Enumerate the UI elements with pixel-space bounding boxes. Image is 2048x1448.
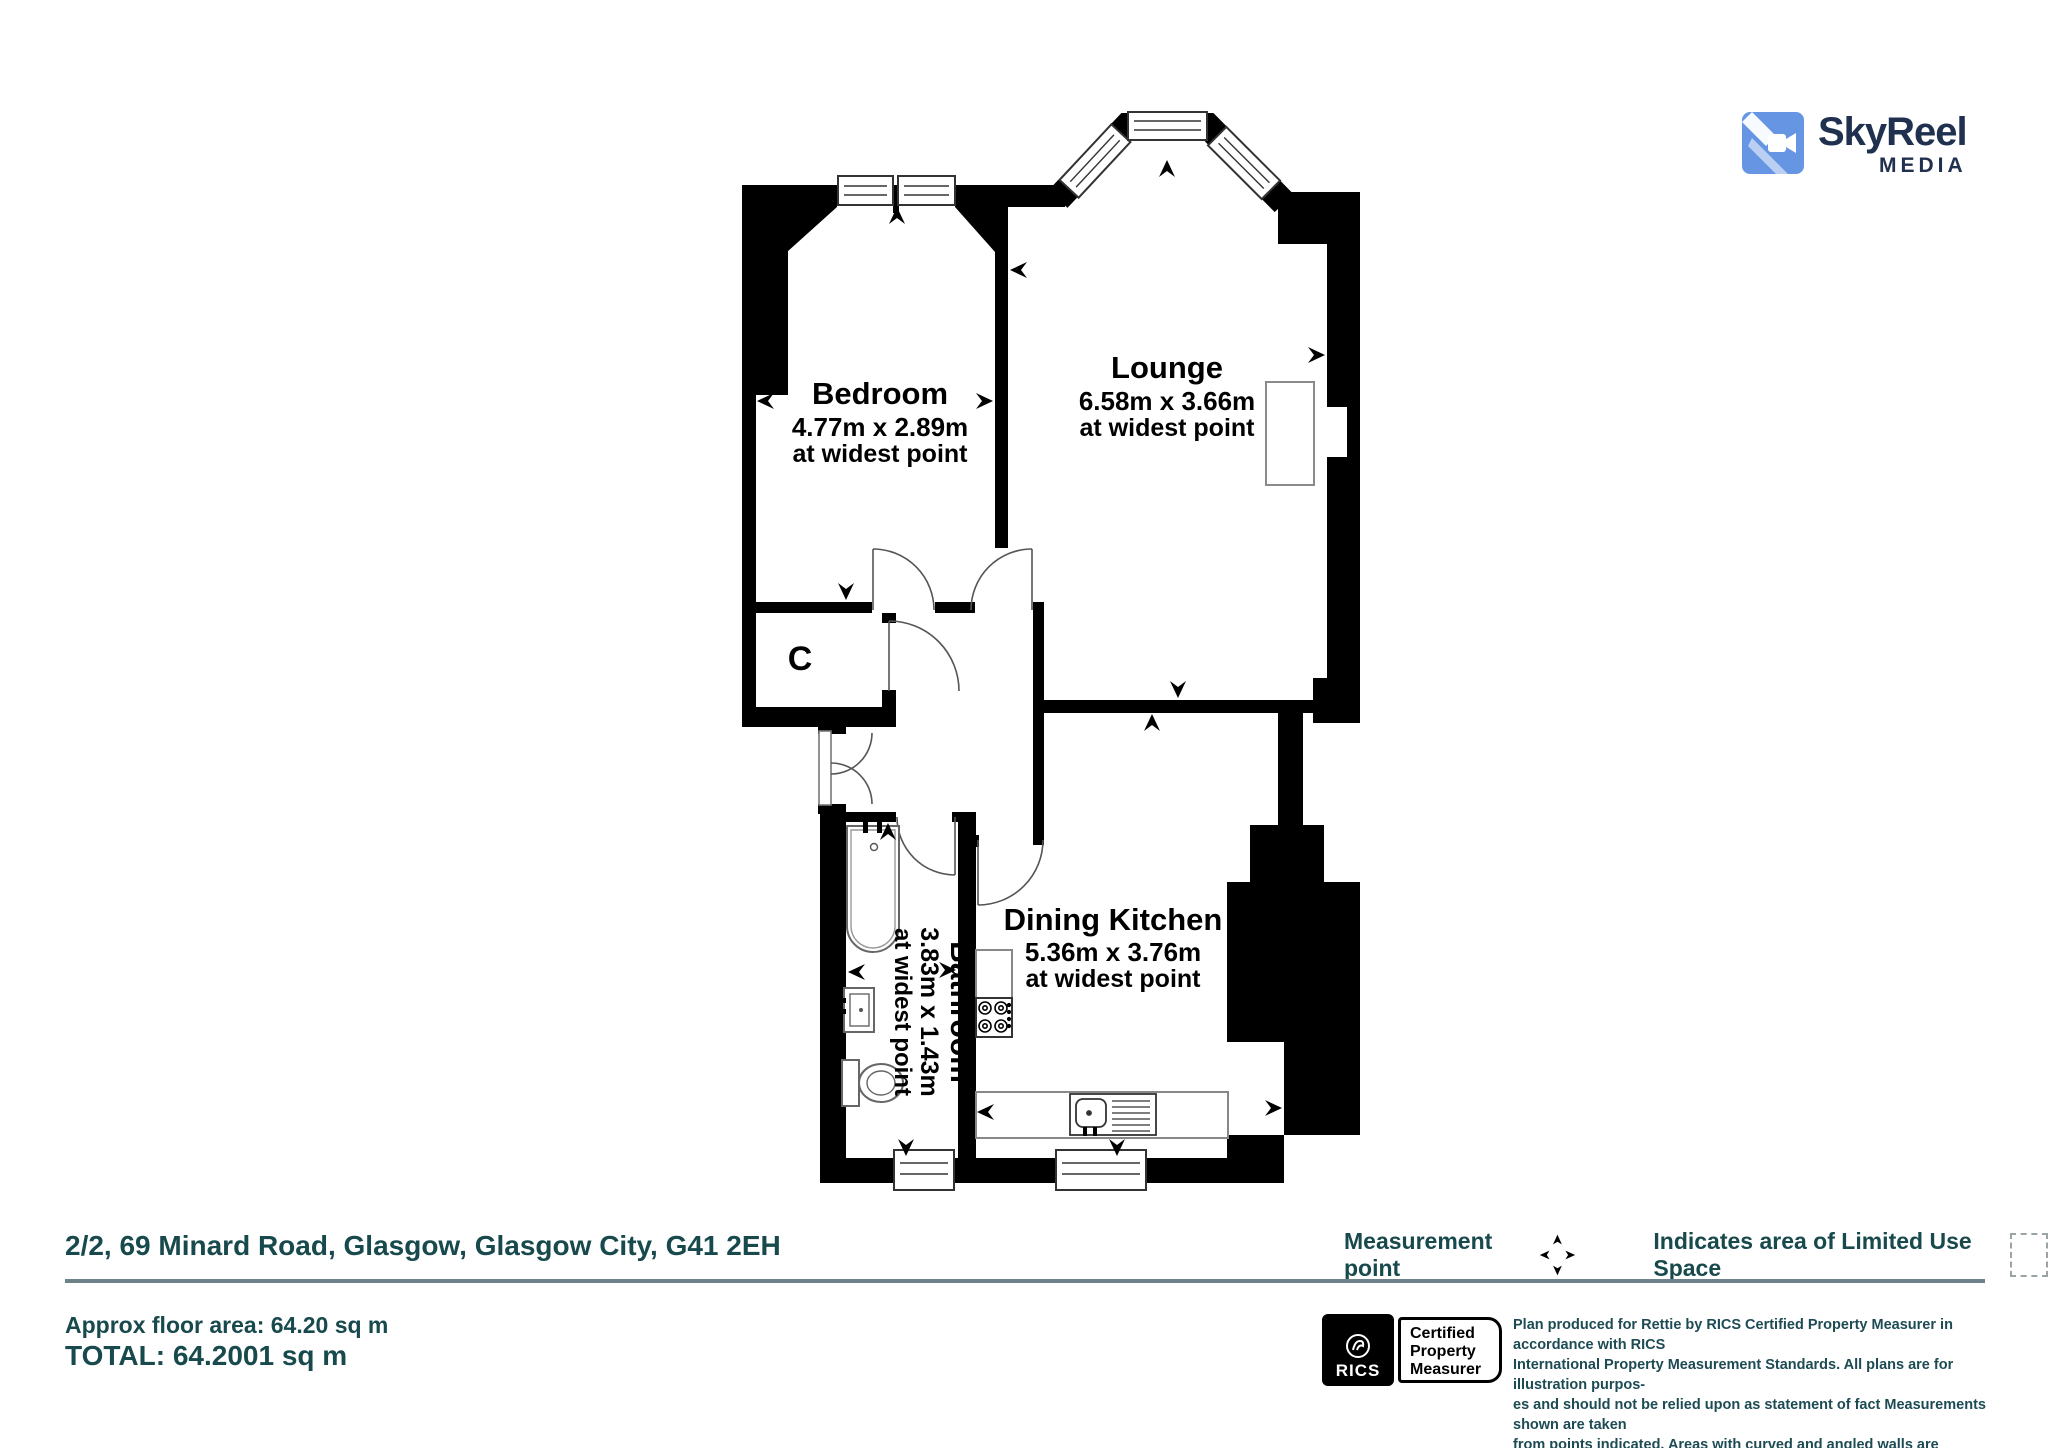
bay-window-center-icon — [1128, 112, 1207, 140]
kitchen-sink-icon — [1070, 1094, 1156, 1136]
disclaimer-line: es and should not be relied upon as stat… — [1513, 1395, 2003, 1435]
certified-property-measurer-badge: Certified Property Measurer — [1398, 1317, 1502, 1383]
lounge-dims: 6.58m x 3.66m — [1079, 386, 1255, 416]
bathroom-sink-icon — [839, 988, 874, 1032]
logo-subtitle: MEDIA — [1818, 154, 1967, 178]
kitchen-counter-left-icon — [976, 950, 1012, 1037]
cpm-line1: Certified — [1410, 1325, 1499, 1343]
floorplan-page: Bedroom 4.77m x 2.89m at widest point Lo… — [0, 0, 2048, 1448]
rics-logo: RICS — [1322, 1314, 1394, 1386]
skyreel-logo: SkyReel MEDIA — [1742, 112, 1967, 178]
dining-kitchen-note: at widest point — [1026, 965, 1202, 993]
measurement-point-label: Measurement point — [1344, 1228, 1530, 1282]
bedroom-note: at widest point — [793, 440, 969, 468]
rics-label: RICS — [1336, 1361, 1381, 1381]
lounge-note: at widest point — [1080, 414, 1256, 442]
legend: Measurement point Indicates area of Limi… — [1344, 1228, 2048, 1282]
bedroom-label: Bedroom — [812, 376, 948, 411]
bay-window-left-icon — [1060, 124, 1131, 197]
footer-divider — [65, 1279, 1985, 1283]
entrance-double-door-icon — [819, 731, 872, 805]
logo-name: SkyReel — [1818, 112, 1967, 152]
cupboard-door-icon — [889, 621, 959, 691]
cpm-line3: Measurer — [1410, 1361, 1499, 1379]
measurement-point-icon — [1538, 1232, 1577, 1278]
bathroom-window-icon — [894, 1150, 954, 1190]
bathroom-label: Bathroom — [944, 941, 977, 1083]
bathroom-door-icon — [897, 817, 955, 875]
bedroom-dims: 4.77m x 2.89m — [792, 412, 968, 442]
bathroom-dims: 3.83m x 1.43m — [915, 927, 943, 1097]
disclaimer-line: from points indicated. Areas with curved… — [1513, 1435, 2003, 1448]
rics-lion-icon — [1343, 1331, 1373, 1361]
walls — [742, 126, 1360, 1183]
approx-floor-area: Approx floor area: 64.20 sq m — [65, 1312, 388, 1339]
lounge-label: Lounge — [1111, 350, 1223, 385]
bathroom-note: at widest point — [889, 928, 916, 1096]
skyreel-logo-icon — [1742, 112, 1804, 174]
kitchen-window-icon — [1056, 1150, 1146, 1190]
lounge-door-icon — [971, 549, 1032, 610]
dining-kitchen-dims: 5.36m x 3.76m — [1025, 937, 1201, 967]
kitchen-counter-bottom-icon — [976, 1092, 1228, 1138]
limited-use-icon — [2010, 1233, 2048, 1277]
bedroom-window-left-icon — [838, 176, 893, 205]
disclaimer-line: International Property Measurement Stand… — [1513, 1355, 2003, 1395]
kitchen-door-icon — [978, 840, 1043, 905]
cpm-line2: Property — [1410, 1343, 1499, 1361]
property-address: 2/2, 69 Minard Road, Glasgow, Glasgow Ci… — [65, 1230, 781, 1262]
dining-kitchen-label: Dining Kitchen — [1004, 902, 1223, 937]
bay-window-right-icon — [1208, 127, 1280, 199]
disclaimer-line: Plan produced for Rettie by RICS Certifi… — [1513, 1315, 2003, 1355]
total-area: TOTAL: 64.2001 sq m — [65, 1340, 347, 1372]
limited-use-label: Indicates area of Limited Use Space — [1653, 1228, 2000, 1282]
bedroom-window-right-icon — [898, 176, 955, 205]
cupboard-label: C — [788, 640, 813, 678]
bedroom-door-icon — [873, 549, 934, 610]
disclaimer-text: Plan produced for Rettie by RICS Certifi… — [1513, 1315, 2003, 1448]
